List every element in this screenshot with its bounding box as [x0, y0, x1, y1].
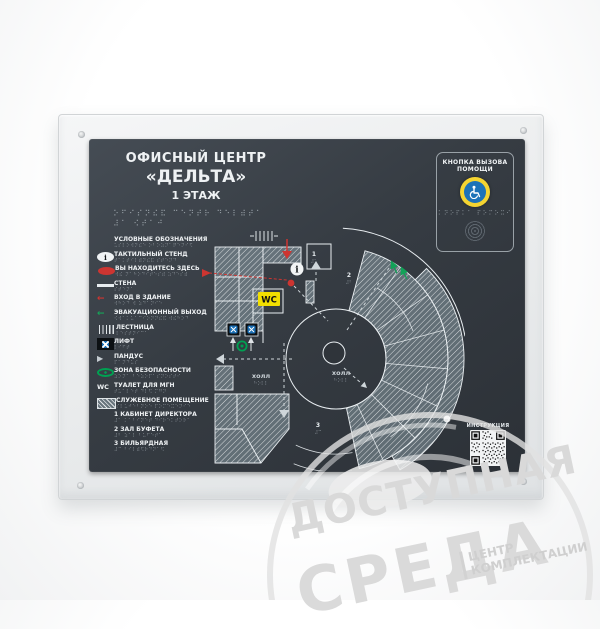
svg-text:2: 2	[347, 272, 351, 279]
svg-text:i: i	[295, 266, 299, 276]
acrylic-panel: ОФИСНЫЙ ЦЕНТР «ДЕЛЬТА» 1 ЭТАЖ ⠕⠋⠊⠎⠝⠮⠯ ⠉⠑…	[58, 114, 544, 500]
legend-header: УСЛОВНЫЕ ОБОЗНАЧЕНИЯ ⠥⠎⠇⠕⠺⠝⠮⠑ ⠕⠃⠕⠵⠝⠁⠟⠑⠝⠊…	[97, 236, 207, 249]
corner-screw	[520, 478, 527, 485]
legend-braille: ⠺⠓⠕⠙ ⠺ ⠵⠙⠁⠝⠊⠑	[114, 301, 207, 307]
legend-item: 2 ЗАЛ БУФЕТА ⠼⠃ ⠵⠁⠇ ⠃⠥⠋⠑⠞⠁	[97, 426, 207, 439]
svg-text:⠼⠁: ⠼⠁	[310, 259, 317, 265]
svg-text:3: 3	[316, 422, 320, 429]
qr-code	[470, 430, 506, 466]
legend-item: ЛИФТ ⠇⠊⠋⠞	[97, 338, 207, 351]
legend-item: 3 БИЛЬЯРДНАЯ ⠼⠉ ⠃⠊⠇⠾⠫⠗⠙⠝⠁⠫	[97, 440, 207, 453]
legend-label: ПАНДУС	[114, 353, 207, 360]
svg-text:⠓⠕⠇⠇: ⠓⠕⠇⠇	[254, 380, 269, 387]
corner-screw	[520, 127, 527, 134]
legend-braille: ⠼⠉ ⠃⠊⠇⠾⠫⠗⠙⠝⠁⠫	[114, 447, 207, 453]
help-call-braille: ⠅⠝⠕⠏⠅⠁ ⠏⠕⠍⠕⠭⠊	[437, 210, 513, 217]
legend-braille: ⠼⠃ ⠵⠁⠇ ⠃⠥⠋⠑⠞⠁	[114, 433, 207, 439]
legend-icon	[97, 440, 114, 453]
legend-braille: ⠞⠥⠁⠇⠑⠞ ⠙⠇⠫ ⠍⠛⠝	[114, 389, 207, 395]
sign-title: ОФИСНЫЙ ЦЕНТР «ДЕЛЬТА» 1 ЭТАЖ	[101, 151, 291, 202]
legend-braille: ⠪⠺⠁⠅⠥⠁⠉⠊⠕⠝⠝⠮⠯ ⠺⠮⠓⠕⠙	[114, 316, 207, 322]
legend-item: СТЕНА ⠎⠞⠑⠝⠁	[97, 280, 207, 293]
qr-label: ИНСТРУКЦИЯ	[464, 423, 512, 430]
legend-icon: ←	[97, 294, 114, 307]
svg-text:⠼⠉: ⠼⠉	[314, 430, 322, 436]
legend-icon	[99, 325, 116, 334]
legend-braille: ⠞⠁⠅⠞⠊⠇⠾⠝⠮⠯ ⠎⠞⠑⠝⠙	[114, 258, 207, 264]
legend-item: 1 КАБИНЕТ ДИРЕКТОРА ⠼⠁ ⠅⠁⠃⠊⠝⠑⠞ ⠙⠊⠗⠑⠅⠞⠕⠗⠁	[97, 411, 207, 424]
help-call-button	[460, 177, 490, 207]
legend-braille: ⠇⠑⠎⠞⠝⠊⠉⠁	[116, 331, 207, 337]
svg-text:холл: холл	[252, 372, 270, 380]
legend-item: ВЫ НАХОДИТЕСЬ ЗДЕСЬ ⠺⠮ ⠝⠁⠓⠕⠙⠊⠞⠑⠎⠾ ⠵⠙⠑⠎⠾	[97, 265, 207, 278]
floor-map: i	[197, 225, 465, 471]
stairs-icon	[250, 231, 278, 241]
legend-braille: ⠎⠇⠥⠚⠑⠃⠝⠕⠑ ⠏⠕⠍⠑⠭⠑⠝⠊⠑	[116, 404, 207, 410]
legend-item: ЛЕСТНИЦА ⠇⠑⠎⠞⠝⠊⠉⠁	[97, 324, 207, 337]
tactile-sign-plate: ОФИСНЫЙ ЦЕНТР «ДЕЛЬТА» 1 ЭТАЖ ⠕⠋⠊⠎⠝⠮⠯ ⠉⠑…	[89, 139, 525, 472]
legend-icon	[97, 368, 114, 377]
watermark-word-sreda: СРЕДА	[290, 505, 556, 629]
legend-item: ← ВХОД В ЗДАНИЕ ⠺⠓⠕⠙ ⠺ ⠵⠙⠁⠝⠊⠑	[97, 294, 207, 307]
legend-item: i ТАКТИЛЬНЫЙ СТЕНД ⠞⠁⠅⠞⠊⠇⠾⠝⠮⠯ ⠎⠞⠑⠝⠙	[97, 251, 207, 264]
svg-text:⠓⠕⠇⠇: ⠓⠕⠇⠇	[334, 377, 349, 384]
svg-text:1: 1	[312, 251, 316, 258]
legend-no-icon	[97, 236, 114, 249]
wheelchair-icon	[464, 181, 486, 203]
corner-screw	[77, 482, 84, 489]
svg-text:WC: WC	[261, 296, 277, 306]
legend-item: WC ТУАЛЕТ ДЛЯ МГН ⠞⠥⠁⠇⠑⠞ ⠙⠇⠫ ⠍⠛⠝	[97, 382, 207, 395]
product-photo: { "sign": { "title": { "line1": "ОФИСНЫЙ…	[0, 0, 600, 600]
legend-braille: ⠇⠊⠋⠞	[114, 345, 207, 351]
legend-braille: ⠺⠮ ⠝⠁⠓⠕⠙⠊⠞⠑⠎⠾ ⠵⠙⠑⠎⠾	[115, 272, 207, 278]
legend-icon	[97, 426, 114, 439]
title-line-1: ОФИСНЫЙ ЦЕНТР	[101, 151, 291, 166]
legend: УСЛОВНЫЕ ОБОЗНАЧЕНИЯ ⠥⠎⠇⠕⠺⠝⠮⠑ ⠕⠃⠕⠵⠝⠁⠟⠑⠝⠊…	[97, 236, 207, 455]
legend-icon	[97, 338, 114, 350]
qr-block: ИНСТРУКЦИЯ	[464, 423, 512, 470]
speaker-grille-icon	[465, 221, 485, 241]
legend-label: 2 ЗАЛ БУФЕТА	[114, 426, 207, 433]
svg-text:⠼⠃: ⠼⠃	[345, 279, 352, 286]
legend-label: СЛУЖЕБНОЕ ПОМЕЩЕНИЕ	[116, 397, 207, 404]
svg-text:холл: холл	[332, 369, 350, 377]
legend-icon: ←	[97, 309, 114, 322]
legend-icon	[97, 284, 114, 288]
legend-icon	[97, 411, 114, 424]
safety-zone-marker	[237, 341, 246, 350]
legend-label: ТАКТИЛЬНЫЙ СТЕНД	[114, 251, 207, 258]
help-call-label: КНОПКА ВЫЗОВА ПОМОЩИ	[437, 159, 513, 173]
title-line-2: «ДЕЛЬТА»	[101, 167, 291, 187]
you-are-here-marker: i	[288, 263, 304, 287]
legend-braille: ⠼⠁ ⠅⠁⠃⠊⠝⠑⠞ ⠙⠊⠗⠑⠅⠞⠕⠗⠁	[114, 418, 207, 424]
legend-item: ЗОНА БЕЗОПАСНОСТИ ⠵⠕⠝⠁ ⠃⠑⠵⠕⠏⠁⠎⠝⠕⠎⠞⠊	[97, 367, 207, 380]
corner-screw	[78, 131, 85, 138]
legend-braille: ⠎⠞⠑⠝⠁	[114, 287, 207, 293]
legend-label: ЭВАКУАЦИОННЫЙ ВЫХОД	[114, 309, 207, 316]
wc-marker: WC	[258, 292, 280, 306]
legend-icon: ▶	[97, 353, 114, 366]
legend-label: СТЕНА	[114, 280, 207, 287]
legend-item: ← ЭВАКУАЦИОННЫЙ ВЫХОД ⠪⠺⠁⠅⠥⠁⠉⠊⠕⠝⠝⠮⠯ ⠺⠮⠓⠕…	[97, 309, 207, 322]
legend-label: ЛЕСТНИЦА	[116, 324, 207, 331]
legend-braille: ⠏⠁⠝⠙⠥⠎	[114, 360, 207, 366]
legend-braille: ⠵⠕⠝⠁ ⠃⠑⠵⠕⠏⠁⠎⠝⠕⠎⠞⠊	[114, 374, 207, 380]
legend-icon: i	[97, 252, 114, 262]
legend-icon: WC	[97, 382, 114, 395]
title-line-3: 1 ЭТАЖ	[101, 189, 291, 202]
legend-item: ▶ ПАНДУС ⠏⠁⠝⠙⠥⠎	[97, 353, 207, 366]
legend-icon	[98, 267, 115, 275]
legend-icon	[97, 398, 116, 409]
legend-label: ТУАЛЕТ ДЛЯ МГН	[114, 382, 207, 389]
watermark-subtitle: ЦЕНТР КОМПЛЕКТАЦИИ	[459, 526, 589, 580]
legend-item: СЛУЖЕБНОЕ ПОМЕЩЕНИЕ ⠎⠇⠥⠚⠑⠃⠝⠕⠑ ⠏⠕⠍⠑⠭⠑⠝⠊⠑	[97, 397, 207, 410]
